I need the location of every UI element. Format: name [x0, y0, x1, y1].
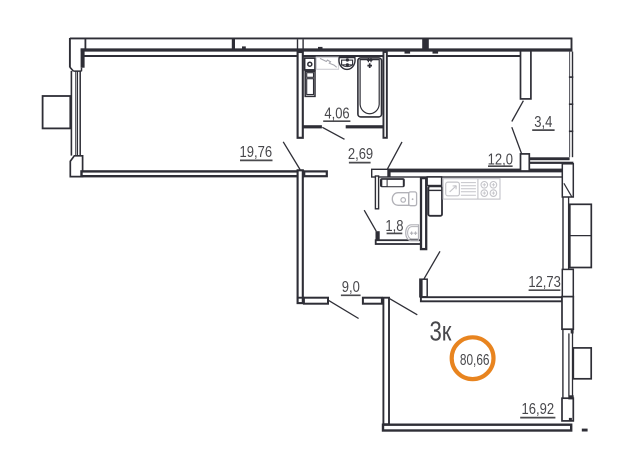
svg-text:2,69: 2,69 — [348, 146, 373, 163]
svg-text:12,73: 12,73 — [528, 274, 561, 291]
svg-text:80,66: 80,66 — [460, 350, 490, 368]
svg-text:1,8: 1,8 — [385, 218, 403, 235]
svg-text:19,76: 19,76 — [240, 144, 273, 161]
svg-text:4,06: 4,06 — [324, 106, 349, 123]
svg-text:3,4: 3,4 — [534, 114, 552, 131]
svg-text:3к: 3к — [430, 316, 453, 347]
svg-text:9,0: 9,0 — [342, 279, 360, 296]
svg-text:16,92: 16,92 — [522, 401, 555, 418]
